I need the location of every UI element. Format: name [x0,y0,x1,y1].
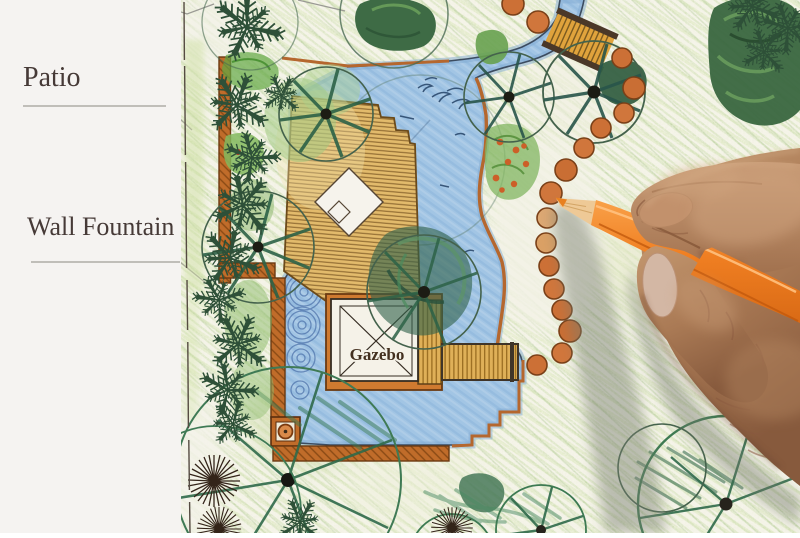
svg-text:Wall Fountain: Wall Fountain [27,212,174,241]
svg-text:Gazebo: Gazebo [350,345,405,364]
svg-text:Patio: Patio [23,62,81,93]
